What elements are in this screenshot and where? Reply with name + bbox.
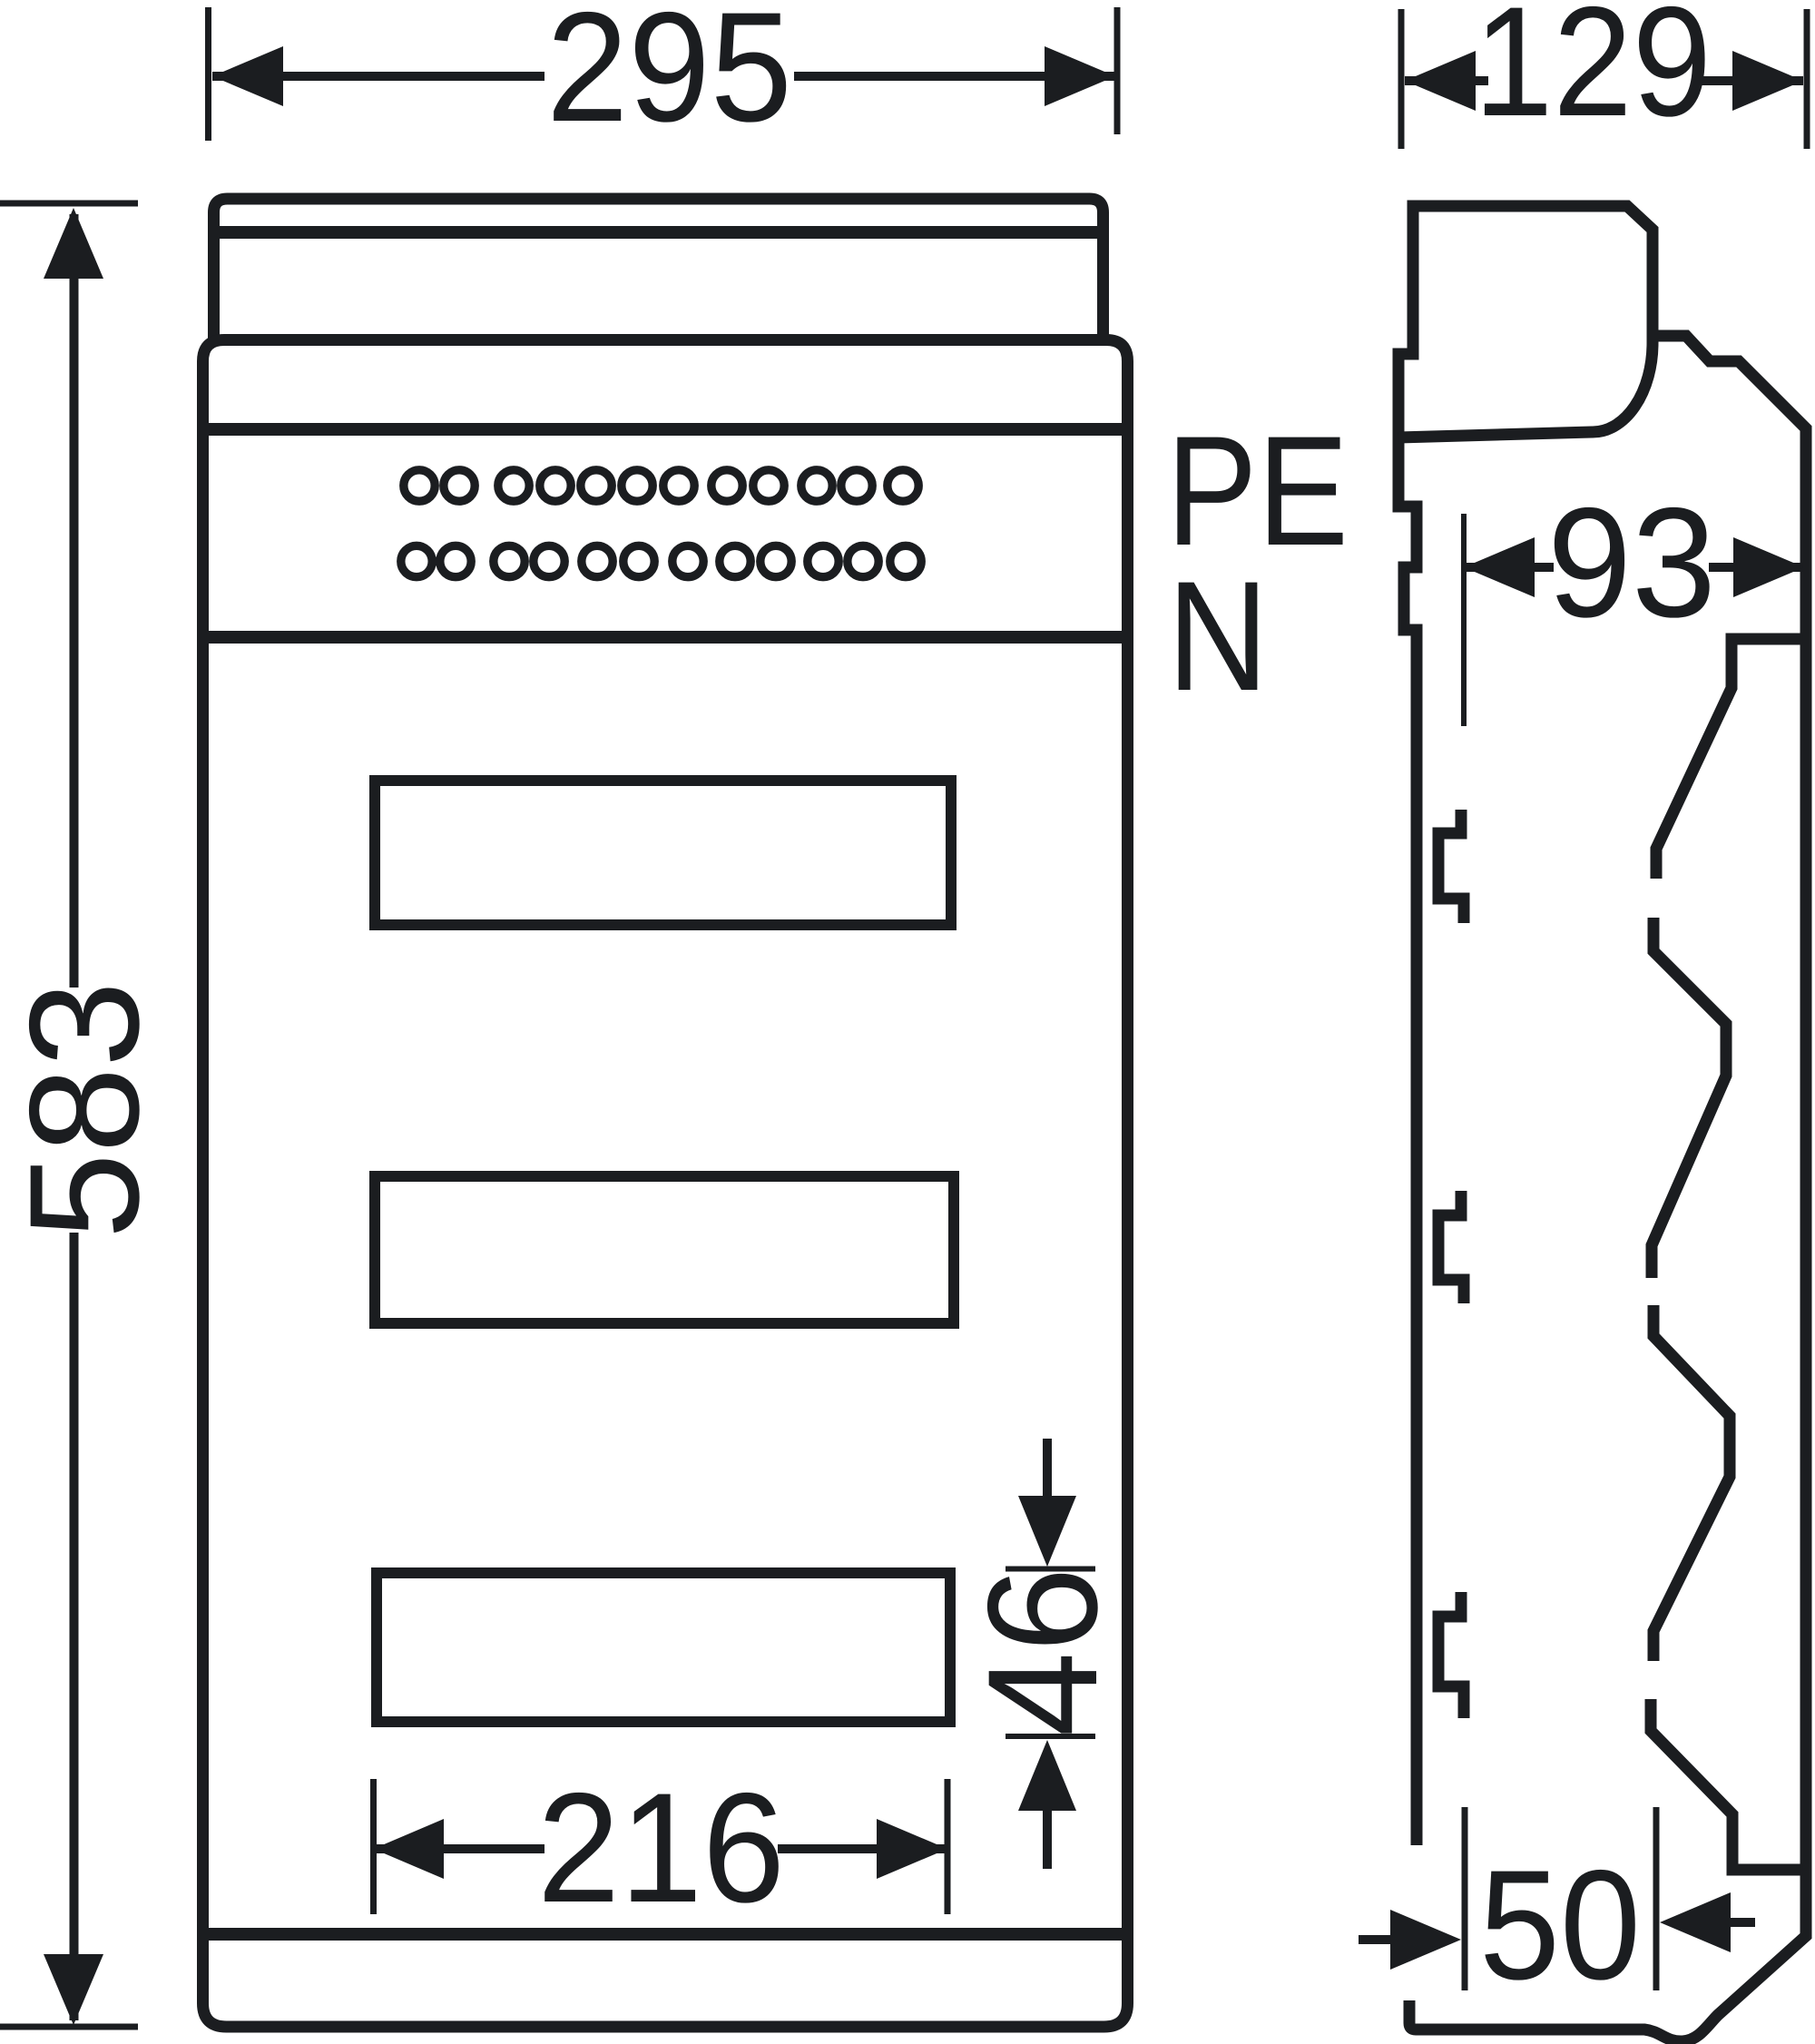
svg-text:216: 216: [537, 1761, 785, 1935]
svg-text:583: 583: [0, 981, 172, 1239]
svg-text:295: 295: [546, 0, 792, 154]
svg-text:46: 46: [956, 1567, 1130, 1737]
svg-text:129: 129: [1474, 0, 1712, 149]
svg-text:N: N: [1167, 549, 1269, 723]
svg-text:50: 50: [1479, 1838, 1641, 2012]
svg-text:93: 93: [1547, 476, 1716, 650]
